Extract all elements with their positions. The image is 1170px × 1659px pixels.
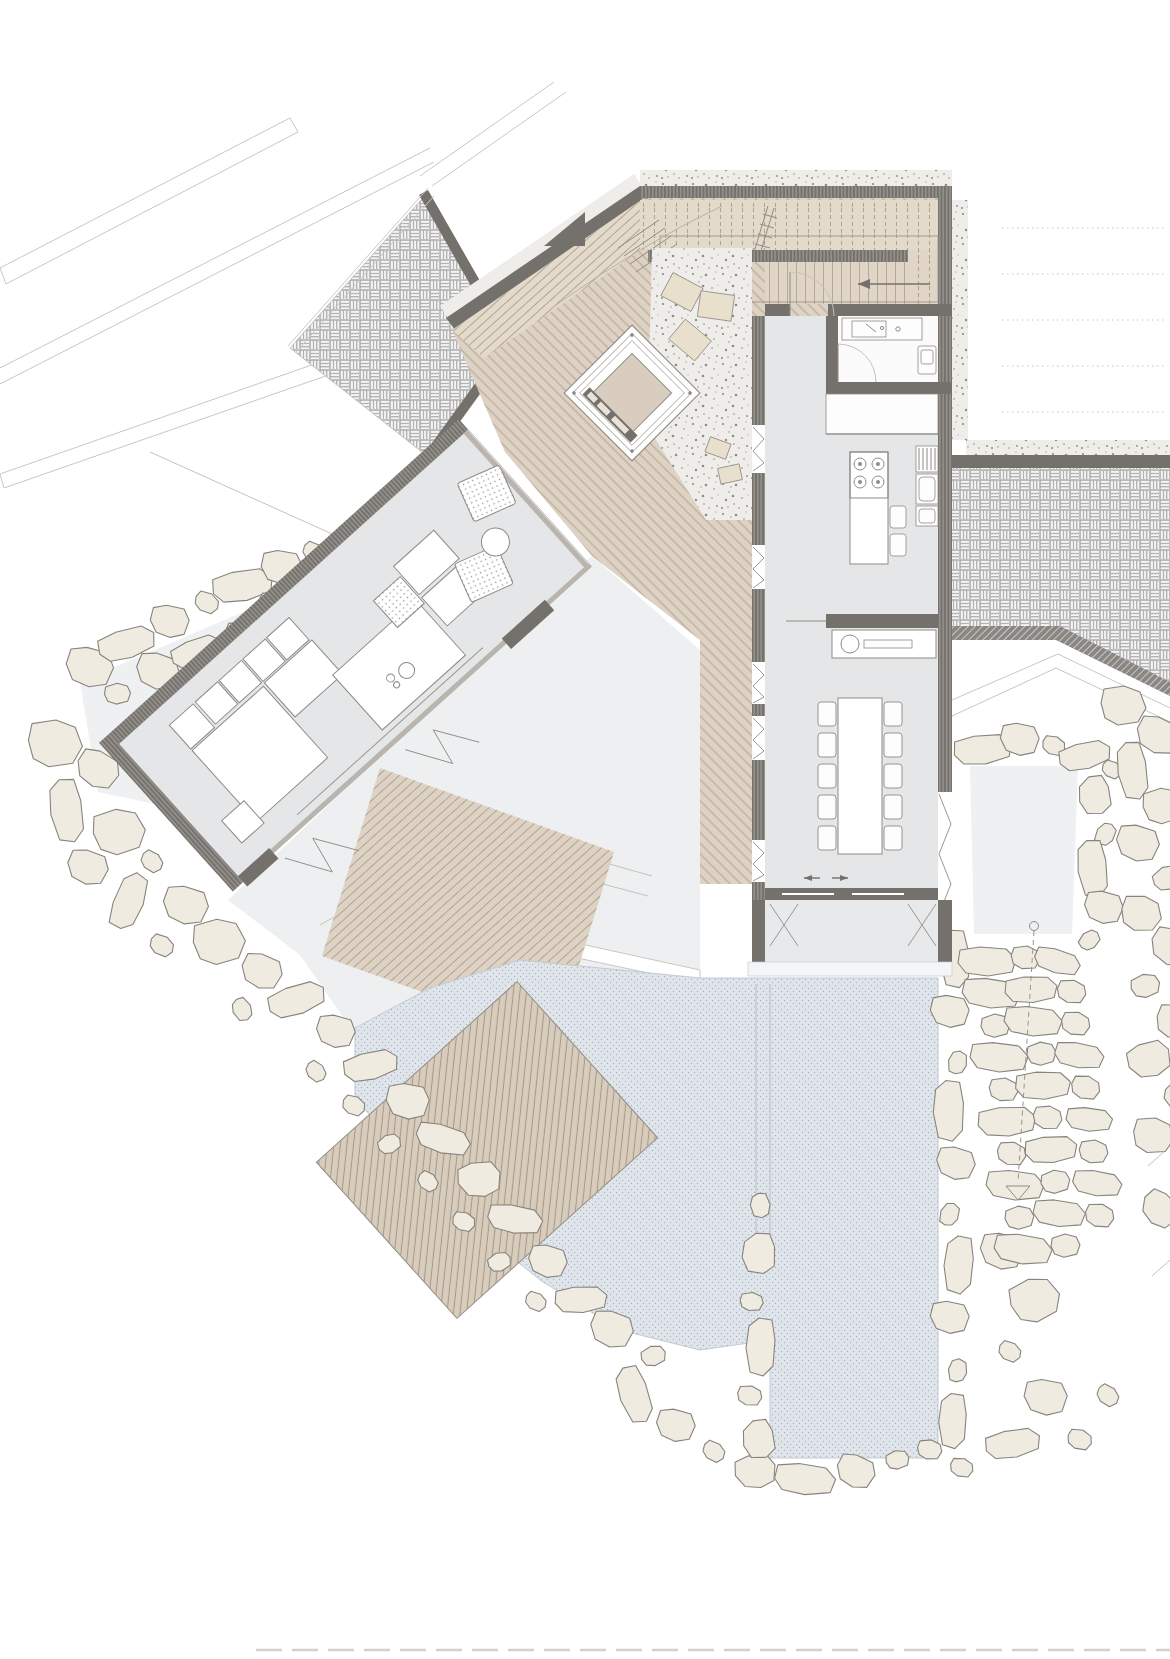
bathroom xyxy=(826,316,952,394)
patio-east xyxy=(970,766,1078,934)
kitchen-counter xyxy=(826,394,938,434)
covered-terrace xyxy=(748,900,952,976)
stool xyxy=(890,534,906,556)
dining-table xyxy=(838,698,882,854)
pool-edge xyxy=(748,962,952,976)
tall-appliances xyxy=(916,446,938,526)
house-east-wing xyxy=(748,272,952,976)
floor-plan-drawing: Architectural floor plan — hillside vill… xyxy=(0,0,1170,1659)
kitchen-island xyxy=(850,452,888,564)
stool xyxy=(890,506,906,528)
dining-room xyxy=(818,698,902,854)
floor-plan-canvas: Architectural floor plan — hillside vill… xyxy=(0,0,1170,1659)
